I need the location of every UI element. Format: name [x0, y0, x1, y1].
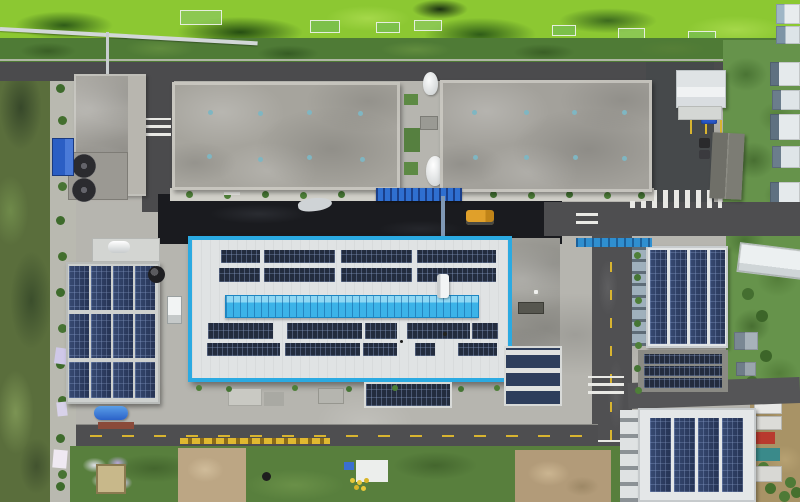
dark-barrel — [262, 472, 271, 481]
solar-array-r4-b5 — [458, 343, 497, 356]
dark-dome-vent — [148, 266, 165, 283]
yard-hut-1 — [228, 388, 262, 406]
solar-array-r2-b1 — [219, 268, 260, 282]
parked-dark-car-2 — [699, 150, 710, 159]
blue-horizontal-tank — [94, 406, 128, 420]
east-edge-hut-4 — [772, 146, 800, 168]
west-roof-tank — [108, 241, 130, 253]
west-panel-col-2 — [91, 266, 111, 398]
west-panel-gap-2 — [68, 358, 158, 362]
warehouse-roof-west — [172, 82, 400, 190]
blue-canopy-strip — [576, 238, 652, 247]
blue-gantry-crane — [376, 188, 462, 201]
yard-hut-3 — [318, 388, 344, 404]
debris-hut — [96, 464, 126, 494]
west-panel-col-1 — [69, 266, 89, 398]
solar-array-r4-b3 — [363, 343, 397, 356]
fence-line — [0, 59, 745, 61]
storage-box-3 — [754, 466, 782, 482]
pipe-support — [106, 32, 109, 76]
solar-array-r3-b5 — [472, 323, 498, 339]
main-crosswalk-small — [576, 208, 598, 224]
ns-road-shrubs — [634, 252, 641, 259]
storage-box-teal — [756, 448, 780, 461]
corridor-green-3 — [404, 162, 418, 175]
solar-array-r1-b2 — [264, 250, 335, 263]
warehouse-roof-east — [440, 80, 652, 192]
pond-net-cage-1 — [180, 10, 222, 25]
storage-box-2 — [756, 416, 782, 430]
carport-row-3 — [644, 378, 722, 388]
ground-solar-array-b — [506, 348, 560, 404]
dirt-patch-west — [178, 448, 246, 502]
northeast-solar-building — [646, 246, 728, 348]
worker-1 — [400, 340, 403, 343]
solar-array-r3-b1 — [208, 323, 273, 339]
solar-array-r2-b4 — [417, 268, 496, 282]
ns-crosswalk-1 — [588, 376, 624, 394]
gray-gabled-building — [709, 132, 744, 200]
worker-2 — [443, 332, 447, 336]
white-gabled-building — [676, 70, 726, 108]
yard-shrubs — [196, 385, 202, 391]
solar-array-r2-b2 — [264, 268, 335, 282]
white-tarp-square — [356, 460, 388, 482]
east-field-trees — [742, 288, 754, 300]
corridor-equipment — [420, 116, 438, 130]
solar-array-r4-b4 — [415, 343, 435, 356]
ne-panel-col-1 — [650, 250, 667, 344]
dirt-patch-east — [515, 450, 611, 502]
south-road-dashes — [90, 435, 590, 437]
pond-net-cage-5 — [552, 25, 576, 36]
se-building-wall — [620, 410, 638, 502]
solar-array-r4-b2 — [285, 343, 360, 356]
solar-array-r3-b4 — [407, 323, 470, 339]
corridor-green-1 — [404, 94, 418, 105]
aux-building-annex — [128, 76, 146, 194]
brown-wall-strip — [98, 422, 134, 429]
west-reed-vegetation — [0, 54, 52, 502]
solar-array-r1-b1 — [221, 250, 260, 263]
se-panel-col-2 — [674, 418, 695, 492]
west-panel-col-3 — [113, 266, 133, 398]
ne-small-hut-2 — [736, 362, 756, 376]
pond-net-cage-2 — [310, 20, 340, 33]
walkway-shrubs — [186, 191, 193, 198]
cooling-fan-2 — [72, 178, 96, 202]
ground-solar-array-a — [366, 384, 450, 406]
skylight-dot-e — [472, 110, 477, 115]
se-panel-col-3 — [698, 418, 719, 492]
yellow-barrier-line — [180, 438, 330, 444]
se-panel-col-1 — [650, 418, 671, 492]
cooling-fan-1 — [72, 154, 96, 178]
southeast-solar-building — [638, 408, 756, 502]
corridor-green-2 — [404, 128, 420, 152]
west-tarp-3 — [52, 449, 68, 468]
solar-array-r2-b3 — [341, 268, 412, 282]
skylight-dot — [208, 110, 213, 115]
silo-tank-north — [423, 72, 438, 95]
pond-net-cage-4 — [414, 20, 442, 31]
parked-dark-car-1 — [699, 138, 710, 148]
ne-panel-col-2 — [670, 250, 687, 344]
pond-net-cage-3 — [376, 22, 400, 33]
carport-row-2 — [644, 366, 722, 376]
annex-chimney — [532, 288, 540, 296]
west-panel-gap-1 — [68, 310, 158, 314]
west-solar-building — [66, 262, 160, 404]
solar-array-r3-b3 — [365, 323, 397, 339]
storage-box-red — [753, 432, 775, 444]
solar-array-r1-b4 — [417, 250, 496, 263]
excavator — [466, 210, 494, 225]
solar-array-r3-b2 — [287, 323, 362, 339]
ne-small-hut-1 — [734, 332, 758, 350]
debris-yellow-drums — [350, 478, 355, 483]
white-building-annex — [678, 106, 722, 120]
west-path-trees — [56, 84, 65, 93]
solar-carport-section — [638, 350, 728, 392]
solar-array-r1-b3 — [341, 250, 412, 263]
ne-panel-col-3 — [690, 250, 707, 344]
west-panel-col-4 — [135, 266, 155, 398]
east-edge-hut-1 — [770, 62, 800, 86]
solar-array-r4-b1 — [207, 343, 280, 356]
ne-corner-hut-2 — [776, 26, 800, 44]
skylight-strip-blue — [225, 295, 479, 318]
debris-blue-bits — [344, 462, 354, 470]
carport-row-1 — [644, 354, 722, 364]
se-panel-col-4 — [722, 418, 743, 492]
yard-hut-2 — [264, 392, 284, 406]
annex-vent-1 — [518, 302, 544, 314]
blue-tarp-structure — [52, 138, 74, 176]
west-yard-truck — [167, 296, 182, 324]
aerial-photo — [0, 0, 800, 502]
ne-corner-hut-1 — [776, 4, 800, 24]
ne-panel-col-4 — [710, 250, 725, 344]
main-solar-building — [188, 236, 512, 382]
west-road-crosswalk — [146, 118, 171, 136]
east-edge-hut-3 — [770, 114, 800, 140]
roof-chimney — [437, 274, 449, 298]
east-edge-hut-2 — [772, 90, 800, 110]
